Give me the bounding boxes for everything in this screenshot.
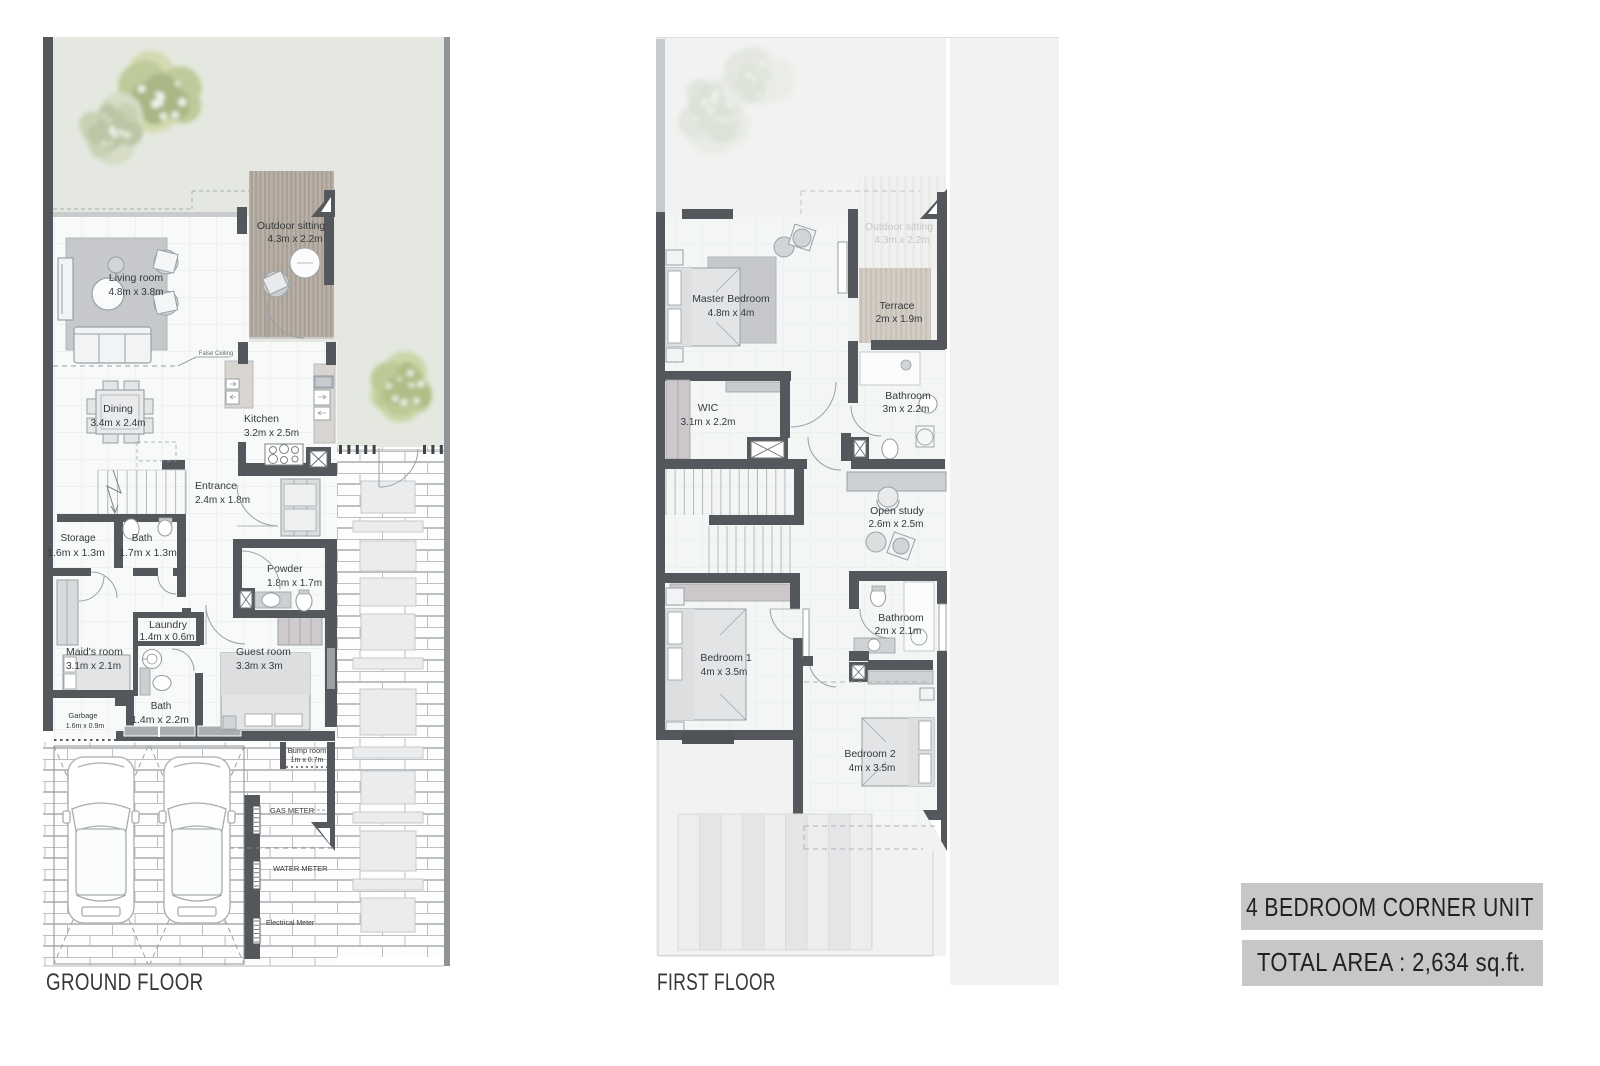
svg-text:Garbage: Garbage xyxy=(68,711,97,720)
svg-text:False Ceiling: False Ceiling xyxy=(199,351,234,357)
svg-text:4.3m x 2.2m: 4.3m x 2.2m xyxy=(874,235,929,246)
svg-text:Living room: Living room xyxy=(109,272,164,284)
svg-text:Powder: Powder xyxy=(267,563,303,575)
svg-text:Bath: Bath xyxy=(151,701,172,712)
svg-text:Dining: Dining xyxy=(103,403,133,415)
svg-text:Outdoor sitting: Outdoor sitting xyxy=(257,220,325,232)
svg-text:GAS METER: GAS METER xyxy=(270,806,315,815)
svg-text:2.6m x 2.5m: 2.6m x 2.5m xyxy=(868,519,923,530)
svg-text:1.4m x 2.2m: 1.4m x 2.2m xyxy=(131,714,189,726)
svg-text:3.1m x 2.1m: 3.1m x 2.1m xyxy=(66,661,121,672)
svg-text:FIRST FLOOR: FIRST FLOOR xyxy=(657,968,776,996)
svg-text:Guest room: Guest room xyxy=(236,646,291,658)
svg-text:2m x 1.9m: 2m x 1.9m xyxy=(876,314,923,325)
svg-text:3.1m x 2.2m: 3.1m x 2.2m xyxy=(680,417,735,428)
svg-text:Bathroom: Bathroom xyxy=(878,612,924,624)
svg-text:3.4m x 2.4m: 3.4m x 2.4m xyxy=(90,418,145,429)
svg-text:Maid's room: Maid's room xyxy=(66,646,123,658)
svg-text:4 BEDROOM CORNER UNIT: 4 BEDROOM CORNER UNIT xyxy=(1246,894,1534,923)
svg-text:Storage: Storage xyxy=(60,533,95,544)
svg-text:Master Bedroom: Master Bedroom xyxy=(692,293,770,305)
svg-text:TOTAL AREA : 2,634 sq.ft.: TOTAL AREA : 2,634 sq.ft. xyxy=(1257,948,1526,977)
svg-text:1.6m x 0.9m: 1.6m x 0.9m xyxy=(66,723,105,730)
svg-text:Electrical Meter: Electrical Meter xyxy=(266,920,315,927)
svg-text:Open study: Open study xyxy=(870,505,924,517)
svg-text:Bath: Bath xyxy=(132,533,153,544)
svg-text:4.8m x 3.8m: 4.8m x 3.8m xyxy=(108,287,163,298)
svg-text:Laundry: Laundry xyxy=(149,619,188,631)
svg-text:1m x 0.7m: 1m x 0.7m xyxy=(291,757,324,764)
svg-text:Bump room: Bump room xyxy=(288,746,327,755)
svg-text:Bedroom 2: Bedroom 2 xyxy=(844,748,896,760)
svg-text:1.6m x 1.3m: 1.6m x 1.3m xyxy=(47,547,105,559)
svg-text:2m x 2.1m: 2m x 2.1m xyxy=(875,626,922,637)
svg-text:4.8m x 4m: 4.8m x 4m xyxy=(708,308,755,319)
svg-text:Bathroom: Bathroom xyxy=(885,390,931,402)
svg-text:4.3m x 2.2m: 4.3m x 2.2m xyxy=(267,234,322,245)
svg-text:1.7m x 1.3m: 1.7m x 1.3m xyxy=(119,547,177,559)
svg-text:WATER METER: WATER METER xyxy=(273,864,328,873)
svg-text:1.8m x 1.7m: 1.8m x 1.7m xyxy=(267,578,322,589)
svg-text:4m x 3.5m: 4m x 3.5m xyxy=(849,763,896,774)
svg-text:1.4m x 0.6m: 1.4m x 0.6m xyxy=(139,632,194,643)
svg-text:Entrance: Entrance xyxy=(195,480,237,492)
svg-text:3.2m x 2.5m: 3.2m x 2.5m xyxy=(244,428,299,439)
svg-text:4m x 3.5m: 4m x 3.5m xyxy=(701,667,748,678)
svg-text:Outdoor sitting: Outdoor sitting xyxy=(865,221,933,233)
svg-text:GROUND FLOOR: GROUND FLOOR xyxy=(46,968,204,996)
svg-text:3m x 2.2m: 3m x 2.2m xyxy=(883,404,930,415)
svg-text:Terrace: Terrace xyxy=(879,300,914,312)
svg-text:Bedroom 1: Bedroom 1 xyxy=(700,652,752,664)
svg-text:3.3m x 3m: 3.3m x 3m xyxy=(236,661,283,672)
svg-text:Kitchen: Kitchen xyxy=(244,413,279,425)
svg-text:WIC: WIC xyxy=(698,402,719,414)
